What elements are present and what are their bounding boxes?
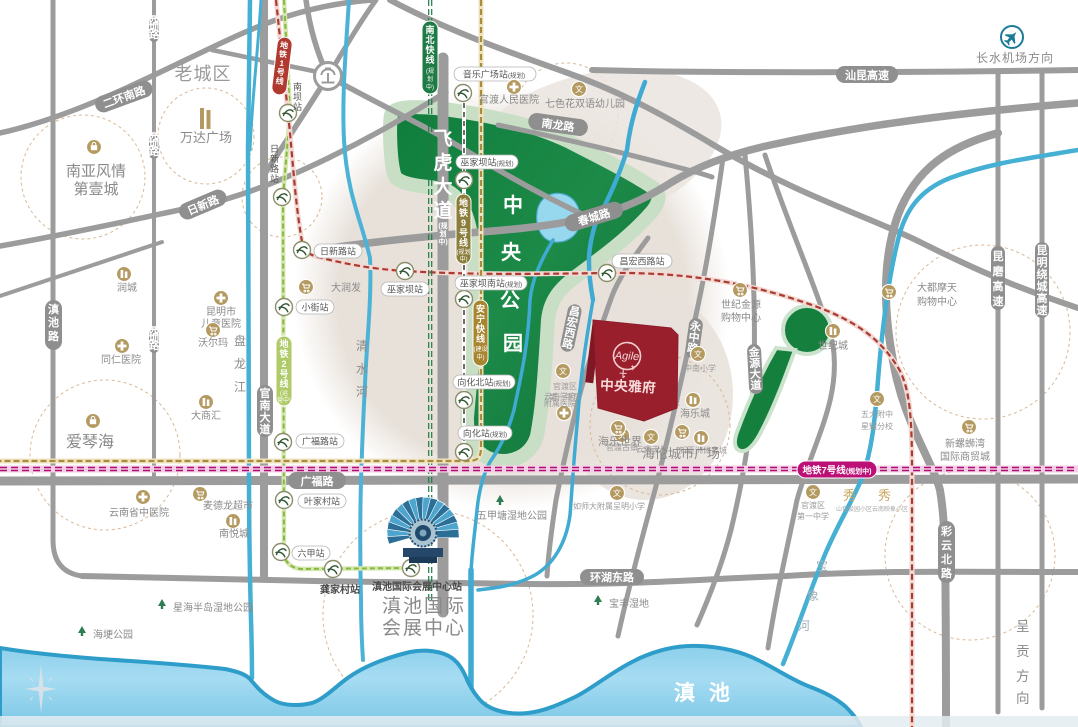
svg-text:高: 高 xyxy=(1037,291,1048,305)
svg-text:虎: 虎 xyxy=(433,151,452,174)
svg-text:路: 路 xyxy=(149,338,161,352)
svg-text:海乐城: 海乐城 xyxy=(680,407,710,420)
svg-text:龚家村站: 龚家村站 xyxy=(320,583,360,596)
svg-text:五甲塘湿地公园: 五甲塘湿地公园 xyxy=(477,509,547,522)
svg-text:铁: 铁 xyxy=(279,348,288,359)
svg-text:中): 中) xyxy=(460,255,468,263)
svg-text:大都摩天: 大都摩天 xyxy=(917,281,957,294)
svg-text:海埂公园: 海埂公园 xyxy=(93,628,133,641)
svg-text:央: 央 xyxy=(501,241,522,264)
svg-text:号: 号 xyxy=(279,369,288,379)
svg-text:滇池国际: 滇池国际 xyxy=(382,595,466,617)
svg-text:爱琴海: 爱琴海 xyxy=(66,433,114,451)
svg-text:城: 城 xyxy=(1037,279,1048,293)
svg-text:道: 道 xyxy=(750,378,762,393)
svg-text:路: 路 xyxy=(48,329,60,343)
svg-text:长水机场方向: 长水机场方向 xyxy=(976,50,1054,65)
svg-text:云南省中医院: 云南省中医院 xyxy=(109,506,169,519)
svg-text:新螺蛳湾: 新螺蛳湾 xyxy=(945,437,985,450)
svg-text:国际商贸城: 国际商贸城 xyxy=(940,450,990,463)
svg-text:号: 号 xyxy=(459,228,468,238)
svg-text:滇 池: 滇 池 xyxy=(674,682,734,705)
svg-text:向: 向 xyxy=(1016,691,1030,706)
svg-text:池: 池 xyxy=(48,315,59,329)
svg-text:官渡区: 官渡区 xyxy=(801,500,825,510)
svg-text:世纪城: 世纪城 xyxy=(818,340,848,352)
svg-text:线: 线 xyxy=(425,54,434,65)
svg-text:彩: 彩 xyxy=(940,524,952,538)
svg-text:安: 安 xyxy=(476,303,485,314)
svg-text:道: 道 xyxy=(433,199,452,222)
svg-text:滇池国际会展中心站: 滇池国际会展中心站 xyxy=(372,580,462,593)
svg-text:道: 道 xyxy=(260,422,271,436)
svg-text:中): 中) xyxy=(438,237,447,246)
svg-text:方: 方 xyxy=(1016,669,1030,684)
svg-text:线: 线 xyxy=(275,75,284,86)
svg-text:Agile: Agile xyxy=(613,350,639,363)
svg-text:(建设: (建设 xyxy=(474,345,488,353)
svg-text:滇: 滇 xyxy=(48,302,59,316)
svg-text:云南映象小区: 云南映象小区 xyxy=(872,505,908,513)
svg-text:线: 线 xyxy=(279,378,288,389)
svg-text:万达广场: 万达广场 xyxy=(180,130,232,145)
svg-text:龙: 龙 xyxy=(234,357,246,371)
svg-text:购物中心: 购物中心 xyxy=(721,311,761,324)
svg-text:第一中学: 第一中学 xyxy=(797,511,829,521)
svg-text:山色俊园小区: 山色俊园小区 xyxy=(836,505,872,513)
svg-text:六甲站: 六甲站 xyxy=(297,548,324,559)
svg-text:划: 划 xyxy=(440,229,447,238)
svg-text:贡: 贡 xyxy=(1016,644,1030,659)
svg-text:云: 云 xyxy=(941,539,952,552)
svg-text:高: 高 xyxy=(993,279,1004,293)
svg-text:速: 速 xyxy=(993,294,1004,308)
svg-text:日新路站: 日新路站 xyxy=(320,246,356,257)
svg-text:河: 河 xyxy=(798,619,810,633)
svg-text:同仁医院: 同仁医院 xyxy=(101,353,141,366)
svg-text:园: 园 xyxy=(503,333,523,355)
svg-text:汕昆高速: 汕昆高速 xyxy=(845,68,889,82)
svg-text:海伦城市广场: 海伦城市广场 xyxy=(642,446,720,461)
svg-text:磨: 磨 xyxy=(992,264,1005,278)
svg-text:站: 站 xyxy=(270,173,279,184)
svg-text:叶家村站: 叶家村站 xyxy=(304,496,340,507)
svg-text:南悦城: 南悦城 xyxy=(219,527,249,540)
svg-text:南: 南 xyxy=(293,81,302,92)
svg-text:昆: 昆 xyxy=(993,250,1004,263)
svg-text:水: 水 xyxy=(356,362,368,376)
svg-text:小街站: 小街站 xyxy=(301,302,328,313)
svg-text:老城区: 老城区 xyxy=(175,64,232,84)
svg-text:日: 日 xyxy=(270,144,279,154)
svg-text:路: 路 xyxy=(149,27,161,41)
svg-text:站: 站 xyxy=(293,101,302,112)
svg-text:铁: 铁 xyxy=(459,207,468,218)
svg-text:沃尔玛: 沃尔玛 xyxy=(198,336,228,349)
svg-text:江: 江 xyxy=(234,380,246,394)
svg-text:昌宏西路站: 昌宏西路站 xyxy=(619,256,664,267)
svg-text:线: 线 xyxy=(459,237,468,248)
svg-text:中: 中 xyxy=(503,193,523,217)
svg-text:官渡区: 官渡区 xyxy=(553,381,577,391)
svg-text:(运: (运 xyxy=(280,389,288,397)
svg-text:飞: 飞 xyxy=(433,129,452,150)
svg-text:五大附中: 五大附中 xyxy=(861,409,893,419)
svg-text:地: 地 xyxy=(459,197,468,208)
svg-text:购物中心: 购物中心 xyxy=(917,295,957,308)
svg-text:快: 快 xyxy=(425,44,435,55)
svg-text:公: 公 xyxy=(500,289,520,312)
svg-text:大: 大 xyxy=(260,410,271,424)
svg-text:坝: 坝 xyxy=(293,92,302,102)
svg-text:呈: 呈 xyxy=(1016,619,1030,634)
svg-text:昆明市: 昆明市 xyxy=(206,305,236,318)
svg-text:巫家坝站: 巫家坝站 xyxy=(387,284,423,295)
svg-text:北: 北 xyxy=(425,34,434,45)
svg-text:绕: 绕 xyxy=(1037,267,1048,281)
svg-text:大: 大 xyxy=(433,175,452,198)
svg-text:宁: 宁 xyxy=(476,313,485,324)
svg-text:中南小学: 中南小学 xyxy=(684,363,716,373)
svg-text:新: 新 xyxy=(270,153,279,164)
svg-text:昆: 昆 xyxy=(1037,244,1048,257)
svg-text:(规: (规 xyxy=(438,221,447,230)
svg-text:官渡人民医院: 官渡人民医院 xyxy=(479,93,539,106)
svg-text:南: 南 xyxy=(260,398,271,412)
svg-text:2: 2 xyxy=(281,359,286,369)
svg-text:(规: (规 xyxy=(426,67,434,75)
svg-text:会展中心: 会展中心 xyxy=(382,617,466,639)
svg-text:环湖东路: 环湖东路 xyxy=(590,570,635,584)
svg-text:润城: 润城 xyxy=(117,281,137,294)
svg-text:明: 明 xyxy=(1037,256,1048,269)
svg-text:广福路站: 广福路站 xyxy=(302,436,338,447)
svg-text:地: 地 xyxy=(279,338,288,349)
svg-text:划: 划 xyxy=(427,75,433,83)
svg-text:世纪金源: 世纪金源 xyxy=(721,298,761,311)
svg-text:七色花双语幼儿园: 七色花双语幼儿园 xyxy=(545,97,625,110)
svg-text:大商汇: 大商汇 xyxy=(191,409,221,422)
svg-text:麦德龙超市: 麦德龙超市 xyxy=(203,499,253,512)
svg-text:第壹城: 第壹城 xyxy=(73,180,118,198)
svg-text:速: 速 xyxy=(1037,303,1048,317)
svg-text:路: 路 xyxy=(270,163,279,174)
svg-text:象: 象 xyxy=(807,589,819,603)
svg-text:南: 南 xyxy=(425,24,434,35)
svg-text:路: 路 xyxy=(149,144,161,158)
svg-text:快: 快 xyxy=(476,323,486,334)
svg-text:宝: 宝 xyxy=(816,559,828,573)
svg-text:河: 河 xyxy=(356,385,368,399)
svg-text:大润发: 大润发 xyxy=(331,281,361,294)
svg-text:清: 清 xyxy=(356,339,368,353)
svg-text:南亚风情: 南亚风情 xyxy=(66,163,126,180)
svg-text:中): 中) xyxy=(477,353,485,361)
svg-text:海乐世界: 海乐世界 xyxy=(598,434,642,448)
svg-text:秀: 秀 xyxy=(843,488,856,503)
svg-text:星海半岛湿地公园: 星海半岛湿地公园 xyxy=(173,601,253,614)
svg-text:9: 9 xyxy=(461,218,466,228)
svg-text:中央雅府: 中央雅府 xyxy=(600,377,657,396)
svg-text:星耀分校: 星耀分校 xyxy=(861,421,893,431)
svg-text:广福路: 广福路 xyxy=(301,474,335,488)
svg-text:线: 线 xyxy=(476,333,485,344)
svg-text:如师大附属呈明小学: 如师大附属呈明小学 xyxy=(573,501,645,511)
svg-text:营中): 营中) xyxy=(277,396,291,404)
svg-text:官: 官 xyxy=(260,386,271,400)
svg-text:中): 中) xyxy=(426,83,434,91)
svg-text:附属医院: 附属医院 xyxy=(544,398,576,408)
svg-text:路: 路 xyxy=(941,566,953,580)
svg-text:盘: 盘 xyxy=(234,333,246,348)
svg-text:北: 北 xyxy=(941,552,952,566)
svg-text:宝丰湿地: 宝丰湿地 xyxy=(609,597,649,610)
svg-text:秀: 秀 xyxy=(878,488,891,503)
svg-text:(规划: (规划 xyxy=(457,248,471,256)
